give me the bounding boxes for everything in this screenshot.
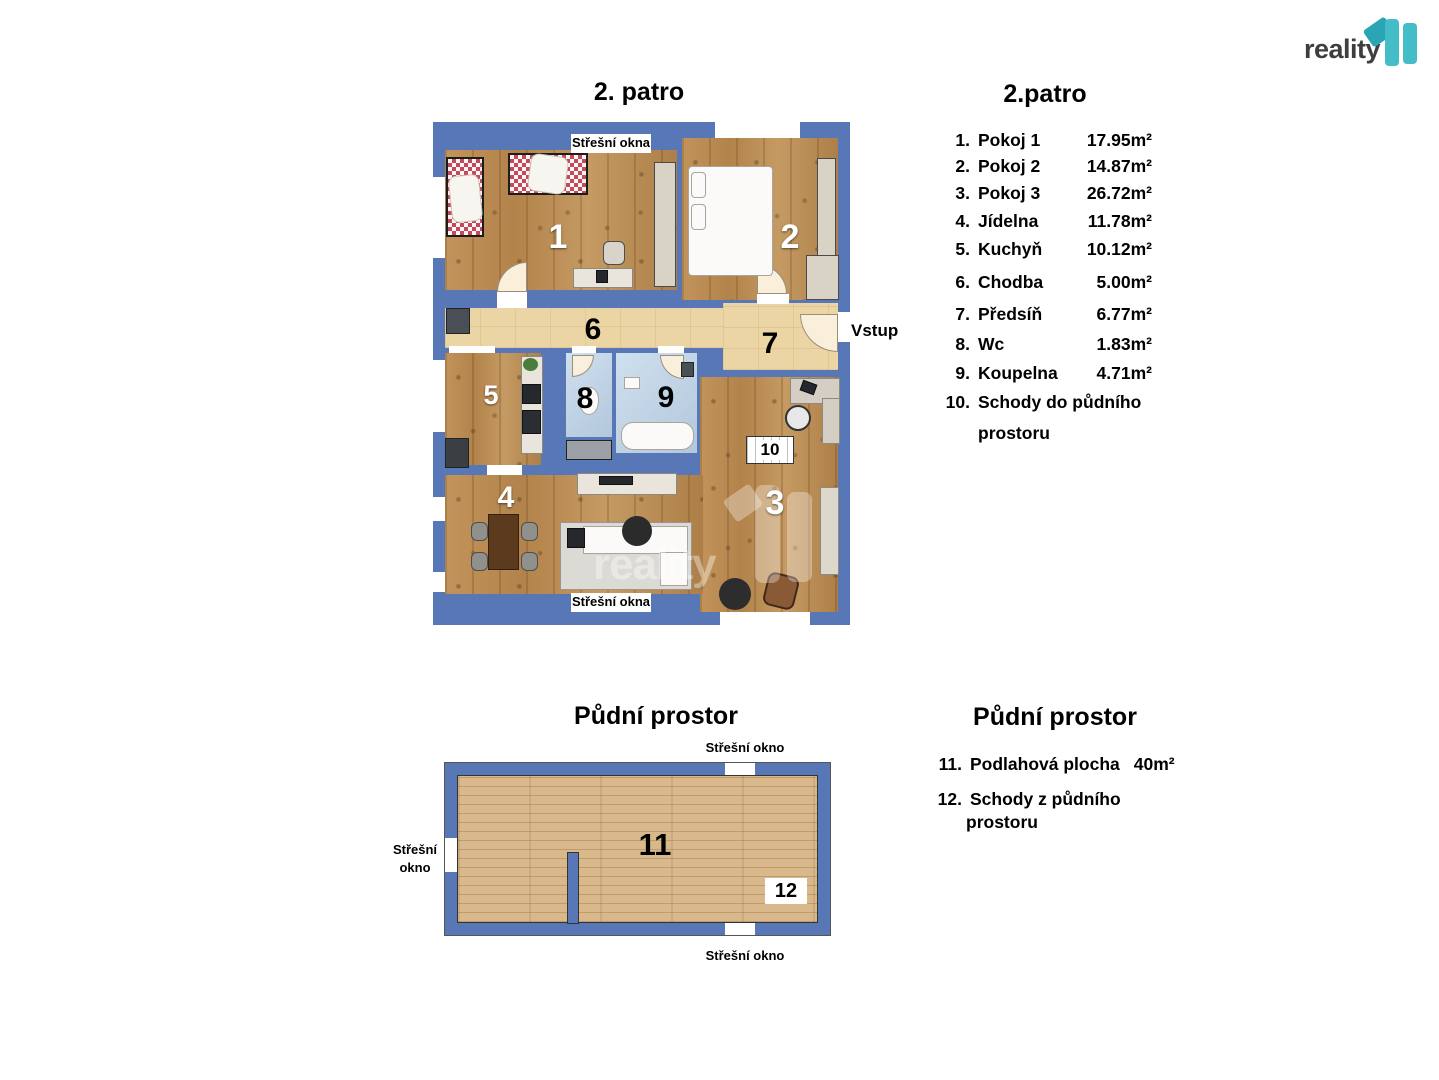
skylight-label-left: Střešní okno [390, 841, 440, 876]
entrance-label: Vstup [851, 321, 898, 341]
skylight-label: Střešní okna [571, 593, 651, 612]
plan2-title: 2. patro [559, 78, 719, 107]
legend-row: 5.Kuchyň10.12m² [942, 239, 1152, 260]
stairs-up: 10 [746, 436, 794, 464]
duvet [527, 153, 570, 196]
attic-legend-title: Půdní prostor [955, 703, 1155, 732]
logo-one-bar-icon [1403, 23, 1417, 64]
stove [522, 384, 541, 404]
dining-table [488, 514, 519, 570]
legend-row: 3.Pokoj 326.72m² [942, 183, 1152, 204]
entrance-door-gap [838, 312, 850, 342]
sofa-pillow [567, 528, 585, 548]
attic-wall-stub [567, 852, 579, 924]
door-opening [658, 346, 684, 353]
plan-attic: 11 12 [445, 763, 830, 935]
hall-cabinet [446, 308, 470, 334]
legend-row: 8.Wc1.83m² [942, 334, 1152, 355]
bathtub [621, 422, 694, 450]
legend-row: 7.Předsíň6.77m² [942, 304, 1152, 325]
watermark-text: reality [593, 540, 716, 590]
legend-row-continuation: prostoru [978, 423, 1050, 444]
door-opening [449, 346, 495, 353]
room-label-7: 7 [750, 329, 790, 359]
pillow [691, 172, 706, 198]
dining-chair [471, 552, 488, 571]
floorplan-page: reality 2. patro 2.patro 1.Pokoj 117.95m… [0, 0, 1439, 1080]
office-chair [785, 405, 811, 431]
room-label-11: 11 [632, 829, 678, 860]
wardrobe [806, 255, 839, 300]
legend2-title: 2.patro [960, 80, 1130, 109]
legend-row: 10.Schody do půdního [942, 392, 1172, 413]
window-gap [433, 177, 445, 258]
room-label-3: 3 [755, 486, 795, 520]
washer [566, 440, 612, 460]
room-label-1: 1 [538, 220, 578, 254]
room-label-8: 8 [565, 384, 605, 414]
door-opening [487, 465, 522, 475]
legend-row-continuation: prostoru [966, 812, 1038, 833]
window-gap [433, 497, 445, 521]
legend-row: 2.Pokoj 214.87m² [942, 156, 1152, 177]
window-gap [433, 572, 445, 592]
room-label-6: 6 [573, 315, 613, 345]
bath-cabinet [681, 362, 694, 377]
dining-chair [471, 522, 488, 541]
monitor [596, 270, 608, 283]
legend-row: 9.Koupelna4.71m² [942, 363, 1152, 384]
legend-row: 4.Jídelna11.78m² [942, 211, 1152, 232]
tv [599, 476, 633, 485]
logo-one-bar-icon [1385, 19, 1399, 66]
window-gap [715, 122, 800, 138]
window-gap [725, 923, 755, 935]
oven [522, 410, 541, 434]
window-gap [445, 838, 457, 872]
skylight-label: Střešní okno [705, 948, 785, 964]
room-label-9: 9 [646, 383, 686, 413]
legend-row: 11.Podlahová plocha40m² [932, 754, 1175, 775]
dining-chair [521, 522, 538, 541]
room-label-12: 12 [765, 878, 807, 904]
sink [624, 377, 640, 389]
attic-plan-title: Půdní prostor [556, 702, 756, 731]
window-gap [725, 763, 755, 775]
door-opening [497, 292, 527, 308]
desk-chair [603, 241, 625, 265]
desk [822, 398, 840, 444]
skylight-label: Střešní okno [705, 740, 785, 756]
legend-row: 12.Schody z půdního [932, 789, 1121, 810]
fridge [445, 438, 469, 468]
round-armchair [719, 578, 751, 610]
plant [523, 358, 538, 371]
plan-2patro: 10 reality 1 2 6 7 5 8 [433, 122, 850, 625]
door-opening [757, 294, 789, 304]
skylight-label: Střešní okna [571, 134, 651, 153]
legend-row: 6.Chodba5.00m² [942, 272, 1152, 293]
wardrobe [654, 162, 676, 287]
window-gap [720, 612, 810, 625]
pillow [691, 204, 706, 230]
room-label-4: 4 [486, 483, 526, 513]
legend-row: 1.Pokoj 117.95m² [942, 130, 1152, 151]
room-label-2: 2 [770, 220, 810, 254]
duvet [448, 174, 484, 224]
door-opening [572, 346, 596, 353]
window-gap [433, 360, 445, 432]
kitchenette [820, 487, 839, 575]
dining-chair [521, 552, 538, 571]
reality11-logo: reality [1300, 12, 1430, 72]
room-label-5: 5 [471, 382, 511, 409]
